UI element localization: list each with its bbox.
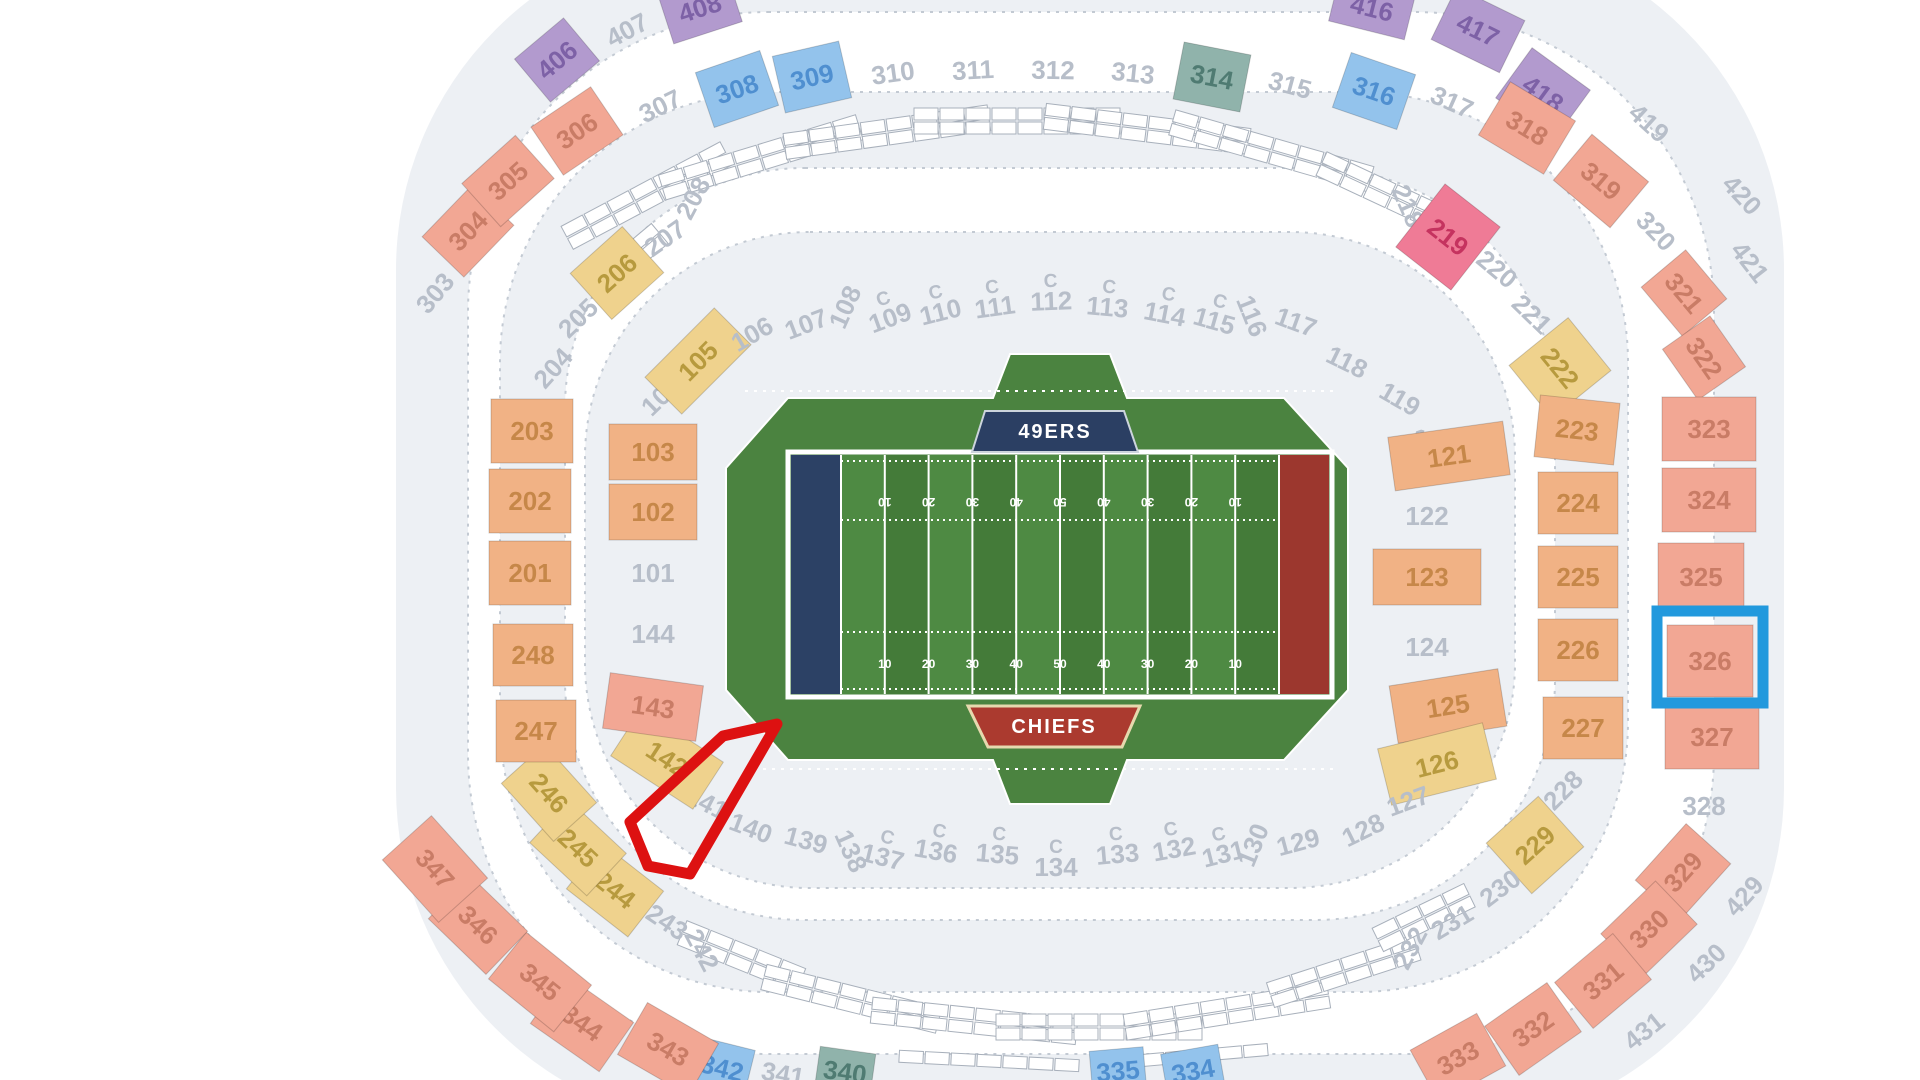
section-103[interactable]: 103: [609, 424, 697, 480]
endzone-away: [1279, 455, 1329, 694]
section-248-label: 248: [511, 640, 554, 670]
yard-number-bottom: 30: [966, 657, 980, 671]
suite-box: [914, 122, 938, 134]
suite-box: [1055, 1058, 1080, 1071]
section-325[interactable]: 325: [1658, 543, 1744, 611]
section-102[interactable]: 102: [609, 484, 697, 540]
yard-number-top: 20: [1184, 495, 1198, 509]
suite-box: [1029, 1057, 1054, 1070]
section-312-label: 312: [1031, 55, 1075, 86]
suite-box: [1022, 1028, 1046, 1040]
field: 10102020303040405050404030302020101049ER…: [726, 354, 1348, 804]
suite-box: [1018, 122, 1042, 134]
section-311[interactable]: 311: [951, 54, 994, 86]
suite-box: [1071, 107, 1096, 122]
section-311-label: 311: [951, 54, 994, 86]
section-202-label: 202: [508, 486, 551, 516]
section-226-label: 226: [1556, 635, 1599, 665]
suite-box: [914, 108, 938, 120]
section-203-label: 203: [510, 416, 553, 446]
suite-box: [1022, 1014, 1046, 1026]
section-226[interactable]: 226: [1538, 619, 1618, 681]
suite-box: [948, 1019, 973, 1033]
section-247[interactable]: 247: [496, 700, 576, 762]
suite-box: [1100, 1028, 1124, 1040]
suite-box: [1074, 1028, 1098, 1040]
suite-box: [992, 122, 1016, 134]
suite-box: [1148, 116, 1173, 131]
suite-box: [870, 1011, 895, 1025]
suite-box: [940, 122, 964, 134]
yard-number-bottom: 30: [1141, 657, 1155, 671]
section-202[interactable]: 202: [489, 469, 571, 533]
section-247-label: 247: [514, 716, 557, 746]
section-122[interactable]: 122: [1405, 501, 1448, 531]
section-101[interactable]: 101: [631, 558, 674, 588]
home-team-label: 49ERS: [1018, 421, 1091, 443]
suite-box: [872, 997, 897, 1011]
section-224[interactable]: 224: [1538, 472, 1618, 534]
yard-number-bottom: 40: [1010, 657, 1024, 671]
section-313-label: 313: [1110, 56, 1156, 90]
suite-box: [1147, 130, 1172, 145]
section-101-label: 101: [631, 558, 674, 588]
section-328[interactable]: 328: [1682, 791, 1725, 821]
suite-box: [1045, 103, 1070, 118]
section-203[interactable]: 203: [491, 399, 573, 463]
section-335[interactable]: 335: [1089, 1047, 1147, 1080]
section-323[interactable]: 323: [1662, 397, 1756, 461]
section-201-label: 201: [508, 558, 551, 588]
yard-number-top: 50: [1053, 495, 1067, 509]
section-124[interactable]: 124: [1405, 632, 1449, 662]
stadium-seating-map: 10102020303040405050404030302020101049ER…: [0, 0, 1920, 1080]
section-123[interactable]: 123: [1373, 549, 1481, 605]
stadium-svg: 10102020303040405050404030302020101049ER…: [0, 0, 1920, 1080]
section-324-label: 324: [1687, 485, 1731, 515]
section-314[interactable]: 314: [1173, 42, 1251, 112]
suite-box: [1100, 1014, 1124, 1026]
suite-box: [1095, 124, 1120, 139]
section-144[interactable]: 144: [631, 619, 675, 649]
section-123-label: 123: [1405, 562, 1448, 592]
suite-box: [925, 1052, 950, 1065]
suite-box: [996, 1028, 1020, 1040]
yard-number-bottom: 50: [1053, 657, 1067, 671]
suite-box: [1048, 1014, 1072, 1026]
suite-box: [899, 1050, 924, 1063]
suite-box: [949, 1005, 974, 1019]
suite-box: [1217, 1046, 1242, 1060]
yard-number-bottom: 40: [1097, 657, 1111, 671]
section-312[interactable]: 312: [1031, 55, 1075, 86]
suite-box: [940, 108, 964, 120]
section-326[interactable]: 326: [1667, 625, 1753, 697]
suite-box: [966, 108, 990, 120]
section-143-label: 143: [629, 689, 676, 725]
suite-box: [1121, 127, 1146, 142]
section-323-label: 323: [1687, 414, 1730, 444]
section-201[interactable]: 201: [489, 541, 571, 605]
section-310[interactable]: 310: [869, 55, 916, 91]
suite-box: [951, 1053, 976, 1066]
suite-box: [1122, 113, 1147, 128]
section-325-label: 325: [1679, 562, 1722, 592]
yard-number-bottom: 20: [1185, 657, 1199, 671]
suite-box: [923, 1003, 948, 1017]
section-335-label: 335: [1095, 1054, 1141, 1080]
section-227[interactable]: 227: [1543, 697, 1623, 759]
suite-box: [898, 1000, 923, 1014]
section-124-label: 124: [1405, 632, 1449, 662]
yard-number-top: 20: [922, 495, 936, 509]
section-324[interactable]: 324: [1662, 468, 1756, 532]
suite-box: [896, 1014, 921, 1028]
yard-number-bottom: 10: [878, 657, 892, 671]
section-223[interactable]: 223: [1534, 395, 1620, 465]
section-225[interactable]: 225: [1538, 546, 1618, 608]
section-102-label: 102: [631, 497, 674, 527]
suite-box: [977, 1054, 1002, 1067]
endzone-home: [791, 455, 841, 694]
yard-number-top: 10: [878, 495, 892, 509]
suite-box: [1243, 1044, 1268, 1058]
yard-number-bottom: 20: [922, 657, 936, 671]
section-144-label: 144: [631, 619, 675, 649]
section-327[interactable]: 327: [1665, 705, 1759, 769]
suite-box: [922, 1017, 947, 1031]
suite-box: [1069, 120, 1094, 135]
suite-box: [1097, 110, 1122, 125]
away-team-label: CHIEFS: [1011, 716, 1096, 738]
suite-box: [1048, 1028, 1072, 1040]
section-223-label: 223: [1554, 413, 1600, 447]
section-122-label: 122: [1405, 501, 1448, 531]
section-121-label: 121: [1425, 438, 1472, 474]
yard-number-bottom: 10: [1229, 657, 1243, 671]
suite-box: [992, 108, 1016, 120]
suite-box: [974, 1022, 999, 1036]
suite-box: [1018, 108, 1042, 120]
suite-box: [966, 122, 990, 134]
section-103-label: 103: [631, 437, 674, 467]
suite-box: [1074, 1014, 1098, 1026]
section-227-label: 227: [1561, 713, 1604, 743]
section-225-label: 225: [1556, 562, 1599, 592]
yard-number-top: 40: [1009, 495, 1023, 509]
yard-number-top: 10: [1228, 495, 1242, 509]
yard-number-top: 30: [1141, 495, 1155, 509]
section-224-label: 224: [1556, 488, 1600, 518]
suite-box: [1003, 1056, 1028, 1069]
section-326-label: 326: [1688, 646, 1731, 676]
yard-number-top: 40: [1097, 495, 1111, 509]
section-313[interactable]: 313: [1110, 56, 1156, 90]
section-328-label: 328: [1682, 791, 1725, 821]
section-327-label: 327: [1690, 722, 1733, 752]
yard-number-top: 30: [965, 495, 979, 509]
section-248[interactable]: 248: [493, 624, 573, 686]
suite-box: [996, 1014, 1020, 1026]
suite-box: [1043, 117, 1068, 132]
section-310-label: 310: [869, 55, 916, 91]
